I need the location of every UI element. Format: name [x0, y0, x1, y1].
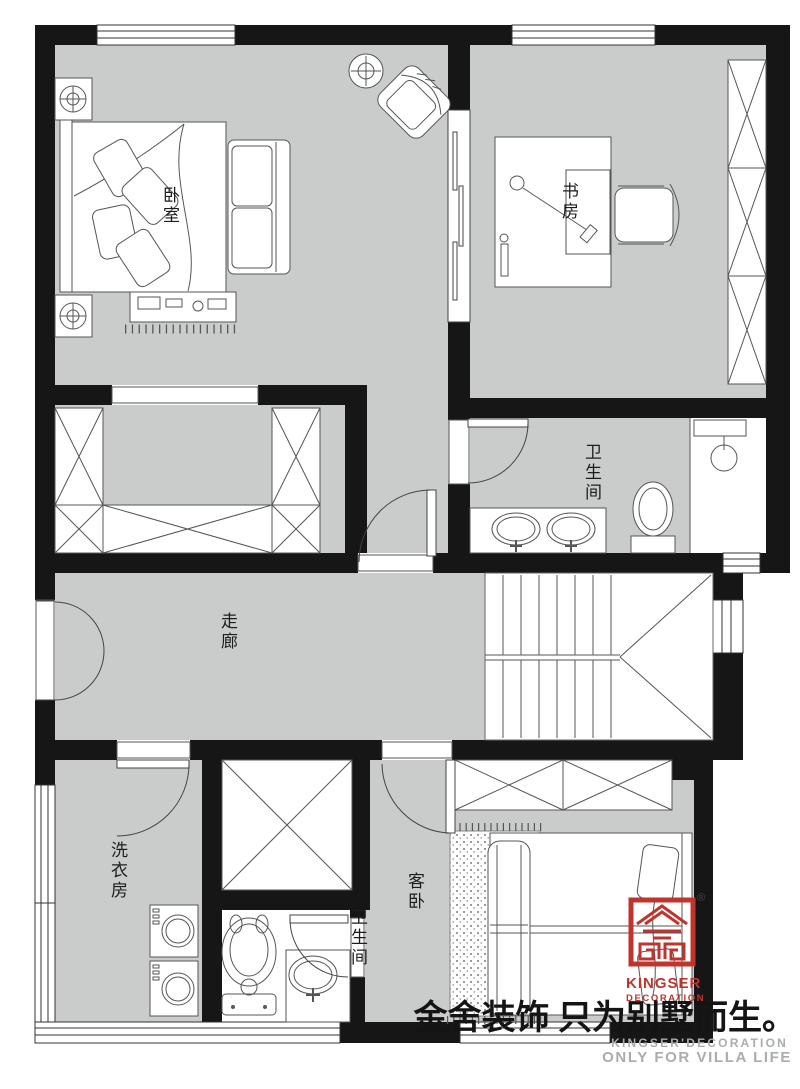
washing-machine-1 — [150, 905, 198, 957]
tv-bench — [130, 292, 236, 322]
toilet-main — [631, 482, 675, 553]
nightstand-bottom — [55, 295, 92, 337]
guest-doorway — [382, 742, 452, 758]
tagline-english: ONLY FOR VILLA LIFE — [602, 1049, 792, 1066]
label-bathroom-main: 卫生间 — [583, 443, 600, 503]
corridor-left-opening — [36, 600, 54, 700]
round-side-table — [349, 54, 383, 88]
window-top-bedroom — [97, 25, 235, 45]
window-left-laundry — [35, 785, 55, 1022]
label-master-bedroom: 卧室 — [161, 186, 178, 226]
kingser-logo: KINGSER DECORATION — [626, 897, 698, 1004]
closet-opening — [112, 387, 258, 403]
kingser-logo-icon — [628, 897, 696, 967]
registered-mark: ® — [697, 892, 705, 904]
shower-area — [690, 418, 766, 553]
sliding-door[interactable] — [448, 110, 470, 322]
bed-bench — [488, 841, 530, 1015]
guest-wardrobe — [455, 760, 672, 810]
shower-box — [222, 760, 352, 890]
corridor-doorway — [358, 555, 433, 571]
label-corridor: 走廊 — [219, 612, 236, 652]
desk — [495, 137, 611, 287]
bookcase — [728, 60, 766, 384]
bathroom-main-doorway — [449, 420, 469, 484]
window-stairwell — [713, 600, 743, 653]
laundry-fixtures — [150, 905, 198, 1016]
toilet-small — [222, 915, 276, 1015]
desk-chair — [615, 184, 679, 246]
label-bathroom-small: 卫生间 — [349, 908, 366, 968]
washing-machine-2 — [150, 961, 198, 1016]
label-guest-bedroom: 客卧 — [406, 872, 423, 912]
laundry-doorway — [117, 742, 190, 758]
label-laundry: 洗衣房 — [109, 841, 126, 901]
stairwell-area — [485, 573, 713, 740]
window-top-study — [512, 25, 655, 45]
double-bed — [60, 120, 226, 292]
floorplan-page: 卧室 书房 卫生间 走廊 洗衣房 卫生间 客卧 KINGSER DECORATI… — [0, 0, 800, 1089]
pillow — [636, 844, 679, 902]
corridor-floor — [55, 573, 485, 740]
nightstand-top — [55, 78, 92, 120]
vanity-double-sink — [470, 508, 606, 553]
passage-floor — [367, 385, 450, 553]
label-study: 书房 — [560, 182, 577, 222]
brand-english: KINGSER'DECORATION — [611, 1036, 788, 1050]
window-bathroom-main — [723, 553, 760, 573]
slogan-chinese: 金舍装饰 只为别墅而生。 — [414, 990, 797, 1039]
bedroom-sofa — [228, 140, 290, 274]
window-bottom-laundry — [35, 1022, 340, 1043]
